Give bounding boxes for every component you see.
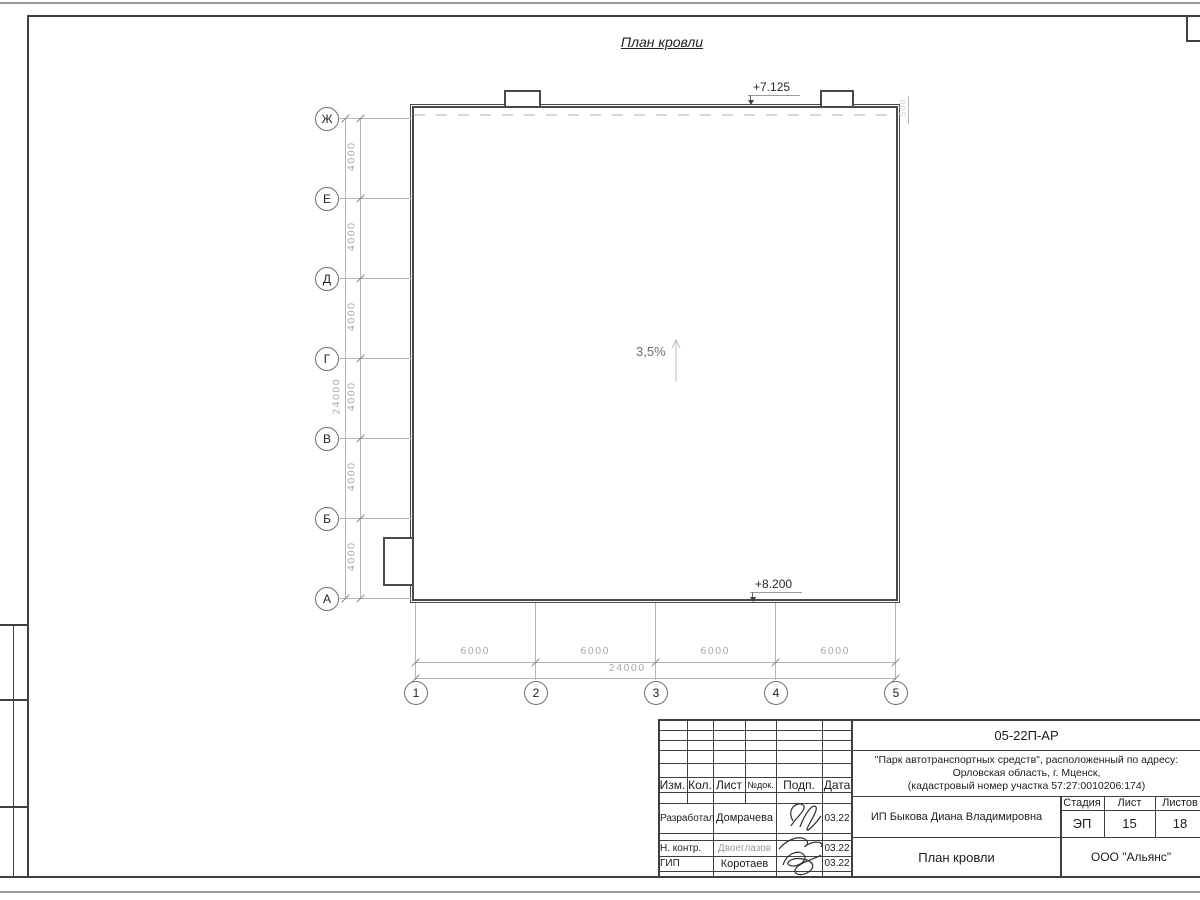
dim-label: 4000 <box>347 127 358 187</box>
wall-protrusion <box>383 537 414 586</box>
axis-bubble-col: 2 <box>524 681 548 705</box>
tb-col-ndoc: №док. <box>745 777 776 792</box>
tb-col-kol: Кол. <box>687 777 713 792</box>
slope-arrow-icon <box>669 337 683 383</box>
tb-sheets-label: Листов <box>1155 796 1200 810</box>
tb-sheet-title: План кровли <box>853 837 1060 877</box>
axis-letter: Г <box>324 352 331 366</box>
axis-bubble-row: А <box>315 587 339 611</box>
tb-sheet-label: Лист <box>1104 796 1155 810</box>
axis-letter: Е <box>323 192 331 206</box>
axis-extension <box>339 518 411 519</box>
tb-sheet-value: 15 <box>1104 810 1155 837</box>
axis-extension <box>339 438 411 439</box>
axis-number: 1 <box>413 686 420 700</box>
roof-dashed-line <box>414 114 896 116</box>
axis-number: 3 <box>653 686 660 700</box>
axis-bubble-col: 4 <box>764 681 788 705</box>
tb-date: 03.22 <box>822 808 852 828</box>
axis-letter: Д <box>323 272 331 286</box>
dim-label: 4000 <box>347 447 358 507</box>
tb-role: Разработал <box>660 803 712 833</box>
roof-vent-box <box>504 90 541 108</box>
axis-number: 4 <box>773 686 780 700</box>
margin-stamp-divider <box>13 624 14 877</box>
axis-extension <box>415 603 416 680</box>
axis-bubble-row: Г <box>315 347 339 371</box>
tb-name: Двоеглазов <box>713 840 776 856</box>
tb-project-line: Орловская область, г. Мценск, <box>953 767 1101 780</box>
dim-label: 4000 <box>347 367 358 427</box>
axis-extension <box>895 603 896 680</box>
frame-top <box>27 15 1200 17</box>
axis-extension <box>339 598 411 599</box>
elevation-bottom-leader <box>750 592 802 593</box>
dim-label-total: 24000 <box>332 367 343 427</box>
tb-client: ИП Быкова Диана Владимировна <box>853 796 1060 837</box>
tb-doc-number: 05-22П-АР <box>853 720 1200 750</box>
tb-col-podp: Подп. <box>776 777 822 792</box>
drawing-sheet: { "page": { "title": "План кровли" }, "d… <box>0 0 1200 900</box>
dim-label: 4000 <box>347 527 358 587</box>
parapet-dim-line <box>908 96 909 124</box>
axis-bubble-col: 3 <box>644 681 668 705</box>
axis-extension <box>339 278 411 279</box>
roof-vent-box <box>820 90 854 108</box>
page-top-edge <box>0 2 1200 4</box>
axis-extension <box>339 358 411 359</box>
dim-label-total: 24000 <box>597 663 657 674</box>
tb-role: Н. контр. <box>660 840 712 856</box>
tb-stage-label: Стадия <box>1060 796 1104 810</box>
dim-label: 6000 <box>805 646 865 657</box>
slope-label: 3,5% <box>636 344 666 359</box>
dim-label: 4000 <box>347 287 358 347</box>
axis-bubble-col: 5 <box>884 681 908 705</box>
tb-stage-value: ЭП <box>1060 810 1104 837</box>
dim-label: 4000 <box>347 207 358 267</box>
axis-letter: Ж <box>321 112 332 126</box>
tb-role: ГИП <box>660 856 712 871</box>
elevation-top-leader <box>748 95 800 96</box>
dim-label: 6000 <box>565 646 625 657</box>
elevation-bottom-arrowhead <box>750 597 756 602</box>
elevation-top-label: +7.125 <box>753 80 790 94</box>
tb-company: ООО "Альянс" <box>1062 837 1200 877</box>
tb-col-data: Дата <box>822 777 852 792</box>
tb-name: Домрачева <box>713 803 776 833</box>
frame-left <box>27 15 29 878</box>
axis-letter: В <box>323 432 331 446</box>
axis-bubble-row: Д <box>315 267 339 291</box>
dim-label: 6000 <box>445 646 505 657</box>
axis-extension <box>339 118 411 119</box>
axis-extension <box>339 198 411 199</box>
elevation-bottom-label: +8.200 <box>755 577 792 591</box>
axis-bubble-row: В <box>315 427 339 451</box>
axis-letter: А <box>323 592 331 606</box>
axis-bubble-row: Ж <box>315 107 339 131</box>
axis-bubble-row: Е <box>315 187 339 211</box>
sheet-heading: План кровли <box>562 34 762 50</box>
dim-line-bottom-total <box>415 678 895 679</box>
axis-extension <box>775 603 776 680</box>
dim-label: 6000 <box>685 646 745 657</box>
axis-bubble-col: 1 <box>404 681 428 705</box>
axis-extension <box>535 603 536 680</box>
tb-col-list: Лист <box>713 777 745 792</box>
parapet-dim-label: 500 <box>899 78 908 138</box>
tb-sheets-value: 18 <box>1155 810 1200 837</box>
axis-letter: Б <box>323 512 331 526</box>
tb-project-line: (кадастровый номер участка 57:27:0010206… <box>908 780 1145 793</box>
tb-project-name: "Парк автотранспортных средств", располо… <box>853 750 1200 796</box>
tb-col-izm: Изм. <box>658 777 687 792</box>
tb-name: Коротаев <box>713 856 776 871</box>
axis-bubble-row: Б <box>315 507 339 531</box>
page-bottom-edge <box>0 891 1200 893</box>
axis-number: 2 <box>533 686 540 700</box>
signature-icon <box>777 835 827 877</box>
corner-stamp-box <box>1186 17 1200 42</box>
axis-number: 5 <box>893 686 900 700</box>
tb-project-line: "Парк автотранспортных средств", располо… <box>875 754 1178 767</box>
elevation-top-arrowhead <box>748 100 754 105</box>
signature-icon <box>781 799 825 833</box>
